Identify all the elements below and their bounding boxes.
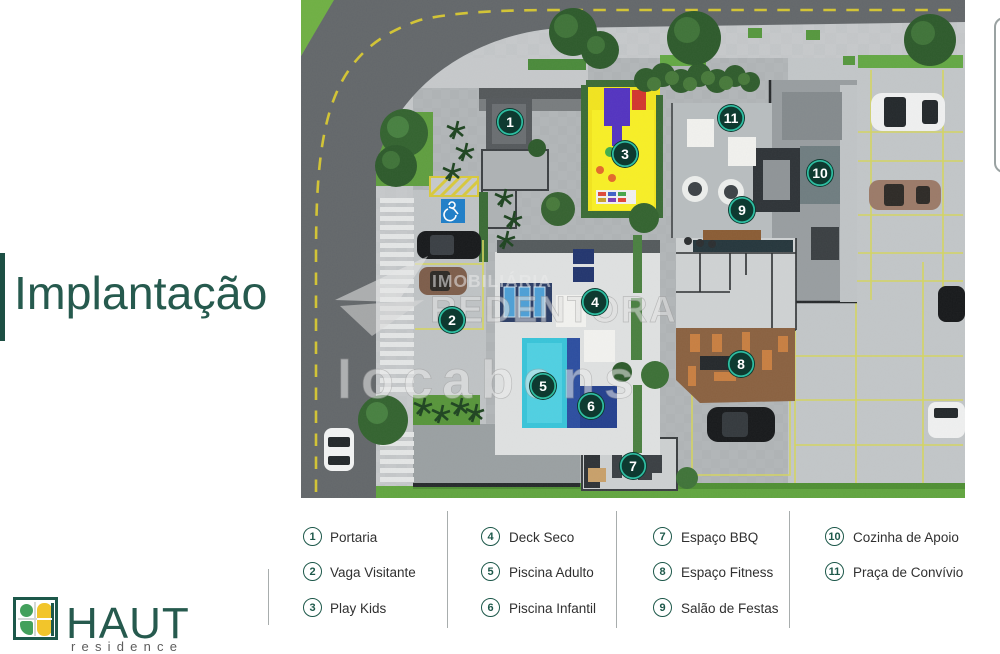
svg-text:1: 1 — [506, 114, 514, 130]
svg-text:10: 10 — [812, 165, 828, 181]
svg-text:5: 5 — [539, 378, 547, 394]
svg-text:9: 9 — [738, 202, 746, 218]
svg-text:4: 4 — [591, 294, 599, 310]
svg-text:8: 8 — [737, 356, 745, 372]
svg-text:3: 3 — [621, 146, 629, 162]
svg-text:7: 7 — [629, 458, 637, 474]
svg-text:2: 2 — [448, 312, 456, 328]
svg-text:6: 6 — [587, 398, 595, 414]
svg-text:11: 11 — [724, 110, 739, 126]
